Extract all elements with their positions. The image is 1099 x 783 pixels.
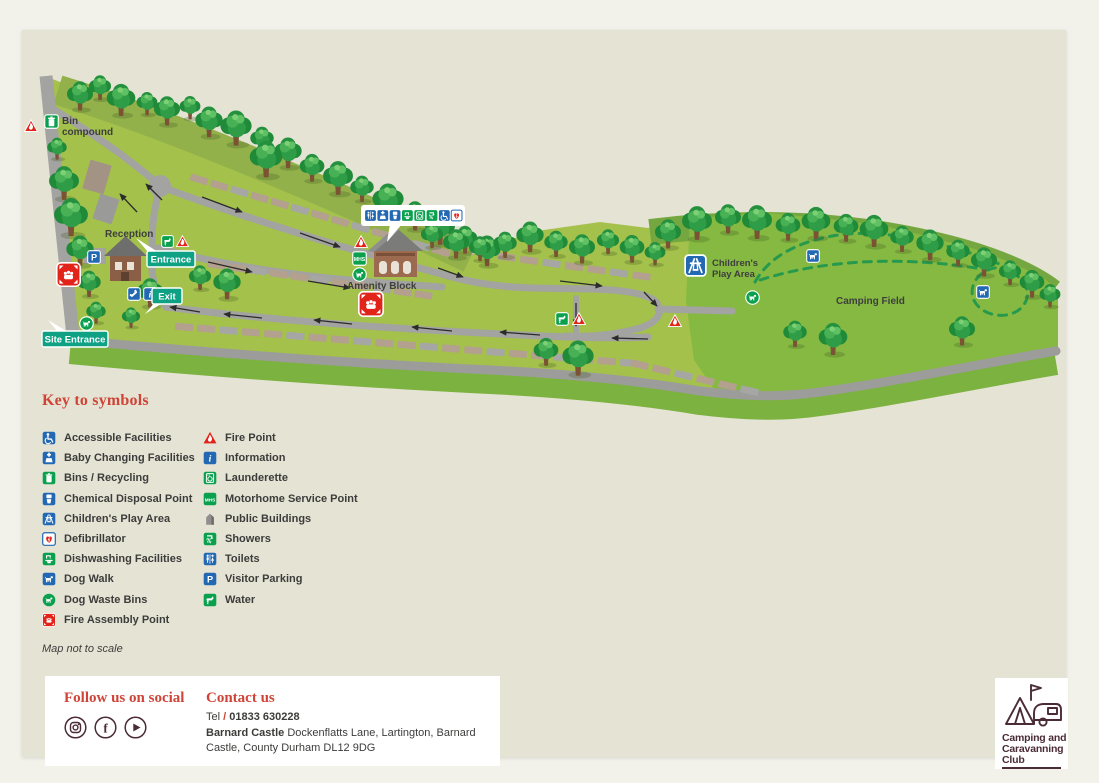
key-item-label: Defibrillator — [64, 533, 126, 545]
play-area-label2: Play Area — [712, 269, 756, 280]
site-name: Barnard Castle — [206, 727, 284, 739]
firepoint-icon — [25, 120, 38, 132]
dishwashing-icon — [42, 552, 56, 566]
key-title: Key to symbols — [42, 392, 502, 410]
dishwashing-icon — [402, 210, 413, 221]
key-item-dogwaste: Dog Waste Bins — [42, 590, 202, 610]
key-item-label: Bins / Recycling — [64, 472, 149, 484]
dogwaste-icon — [42, 593, 56, 607]
baby-changing-icon — [377, 210, 388, 221]
chemical-disposal-icon — [42, 492, 56, 506]
key-item-accessible: Accessible Facilities — [42, 428, 202, 448]
reception-label: Reception — [105, 229, 153, 240]
launderette-icon — [203, 471, 217, 485]
key-item-label: Dog Waste Bins — [64, 594, 147, 606]
defibrillator-icon — [42, 532, 56, 546]
key-item-toilets: Toilets — [203, 549, 403, 569]
bin-compound-label2: compound — [62, 127, 113, 138]
key-item-label: Visitor Parking — [225, 573, 302, 585]
svg-text:P: P — [207, 575, 213, 585]
telephone-line: Tel / 01833 630228 — [206, 711, 484, 723]
defibrillator-icon — [451, 210, 462, 221]
key-item-label: Public Buildings — [225, 513, 311, 525]
social-title: Follow us on social — [64, 690, 214, 707]
bins-icon — [45, 115, 59, 129]
key-item-play: Children's Play Area — [42, 509, 202, 529]
phone-icon — [128, 288, 141, 301]
water-icon — [556, 313, 569, 326]
key-item-firepoint: Fire Point — [203, 428, 403, 448]
mhs-icon: MHS — [353, 252, 367, 266]
key-item-chemical-disposal: Chemical Disposal Point — [42, 489, 202, 509]
key-item-info: iInformation — [203, 448, 403, 468]
youtube-icon[interactable] — [124, 716, 147, 739]
social-icons: f — [64, 716, 214, 739]
toilets-icon — [365, 210, 376, 221]
key-item-mhs: MHSMotorhome Service Point — [203, 489, 403, 509]
info-icon: i — [203, 451, 217, 465]
fireassembly-icon — [359, 292, 383, 316]
key-column-2: Fire PointiInformationLaunderetteMHSMoto… — [203, 428, 403, 610]
key-item-label: Motorhome Service Point — [225, 493, 358, 505]
svg-text:P: P — [91, 253, 97, 263]
svg-text:Site Entrance: Site Entrance — [45, 335, 106, 346]
dogwalk-icon — [42, 572, 56, 586]
svg-text:f: f — [103, 721, 108, 736]
footer-panel: Follow us on social f Contact us Tel / 0… — [45, 676, 500, 766]
play-icon — [685, 255, 706, 276]
page: PiMHS Bin compound Reception Amenity Blo… — [0, 0, 1099, 783]
svg-text:i: i — [149, 290, 152, 301]
dogwaste-icon — [353, 268, 367, 282]
parking-icon: P — [88, 251, 101, 264]
svg-text:MHS: MHS — [205, 497, 216, 503]
logo-underline — [1002, 767, 1061, 769]
key-item-dogwalk: Dog Walk — [42, 569, 202, 589]
contact-section: Contact us Tel / 01833 630228 Barnard Ca… — [206, 690, 484, 756]
key-item-launderette: Launderette — [203, 468, 403, 488]
play-area-label: Children's — [712, 258, 758, 269]
bin-compound-label: Bin — [62, 116, 78, 127]
instagram-icon[interactable] — [64, 716, 87, 739]
fireassembly-icon — [57, 263, 80, 286]
water-icon — [162, 236, 174, 248]
key-item-dishwashing: Dishwashing Facilities — [42, 549, 202, 569]
public-icon — [203, 512, 217, 526]
key-item-showers: Showers — [203, 529, 403, 549]
parking-icon: P — [203, 572, 217, 586]
key-item-bins: Bins / Recycling — [42, 468, 202, 488]
key-item-fireassembly: Fire Assembly Point — [42, 610, 202, 630]
dogwaste-icon — [80, 317, 94, 331]
key-item-label: Information — [225, 452, 286, 464]
accessible-icon — [439, 210, 450, 221]
key-item-parking: PVisitor Parking — [203, 569, 403, 589]
key-item-label: Showers — [225, 533, 271, 545]
facebook-icon[interactable]: f — [94, 716, 117, 739]
play-icon — [42, 512, 56, 526]
amenity-block-label: Amenity Block — [347, 281, 417, 292]
key-item-label: Accessible Facilities — [64, 432, 172, 444]
contact-title: Contact us — [206, 690, 484, 707]
showers-icon — [203, 532, 217, 546]
logo-text: Camping and Caravanning Club — [1002, 733, 1066, 766]
key-item-label: Fire Point — [225, 432, 276, 444]
key-item-water: Water — [203, 590, 403, 610]
club-logo: Camping and Caravanning Club — [995, 678, 1068, 769]
fireassembly-icon — [42, 613, 56, 627]
chemical-disposal-icon — [390, 210, 401, 221]
toilets-icon — [203, 552, 217, 566]
key-column-1: Accessible FacilitiesBaby Changing Facil… — [42, 428, 202, 630]
tel-number[interactable]: 01833 630228 — [229, 711, 299, 723]
key-item-baby-changing: Baby Changing Facilities — [42, 448, 202, 468]
baby-changing-icon — [42, 451, 56, 465]
water-icon — [203, 593, 217, 607]
dogwalk-icon — [977, 286, 990, 299]
tel-label: Tel — [206, 711, 220, 723]
key-item-label: Fire Assembly Point — [64, 614, 169, 626]
svg-text:i: i — [209, 454, 212, 465]
key-item-defibrillator: Defibrillator — [42, 529, 202, 549]
dogwalk-icon — [807, 250, 820, 263]
key-item-public: Public Buildings — [203, 509, 403, 529]
tel-slash: / — [223, 711, 226, 723]
key-item-label: Dishwashing Facilities — [64, 553, 182, 565]
social-section: Follow us on social f — [64, 690, 214, 739]
key-item-label: Chemical Disposal Point — [64, 493, 192, 505]
address: Barnard Castle Dockenflatts Lane, Lartin… — [206, 726, 484, 756]
launderette-icon — [414, 210, 425, 221]
key-item-label: Dog Walk — [64, 573, 114, 585]
svg-text:Exit: Exit — [158, 292, 176, 303]
key-item-label: Launderette — [225, 472, 288, 484]
tent-caravan-icon — [1001, 682, 1063, 728]
key-item-label: Children's Play Area — [64, 513, 170, 525]
firepoint-icon — [203, 431, 217, 445]
key-item-label: Water — [225, 594, 255, 606]
accessible-icon — [42, 431, 56, 445]
mhs-icon: MHS — [203, 492, 217, 506]
map-scale-note: Map not to scale — [42, 643, 123, 655]
key-item-label: Baby Changing Facilities — [64, 452, 195, 464]
key-section: Key to symbols Accessible FacilitiesBaby… — [42, 392, 502, 410]
dogwaste-icon — [746, 291, 760, 305]
showers-icon — [427, 210, 438, 221]
key-item-label: Toilets — [225, 553, 260, 565]
bins-icon — [42, 471, 56, 485]
camping-field-label: Camping Field — [836, 296, 905, 307]
svg-text:Entrance: Entrance — [151, 255, 192, 266]
svg-text:MHS: MHS — [354, 257, 366, 263]
